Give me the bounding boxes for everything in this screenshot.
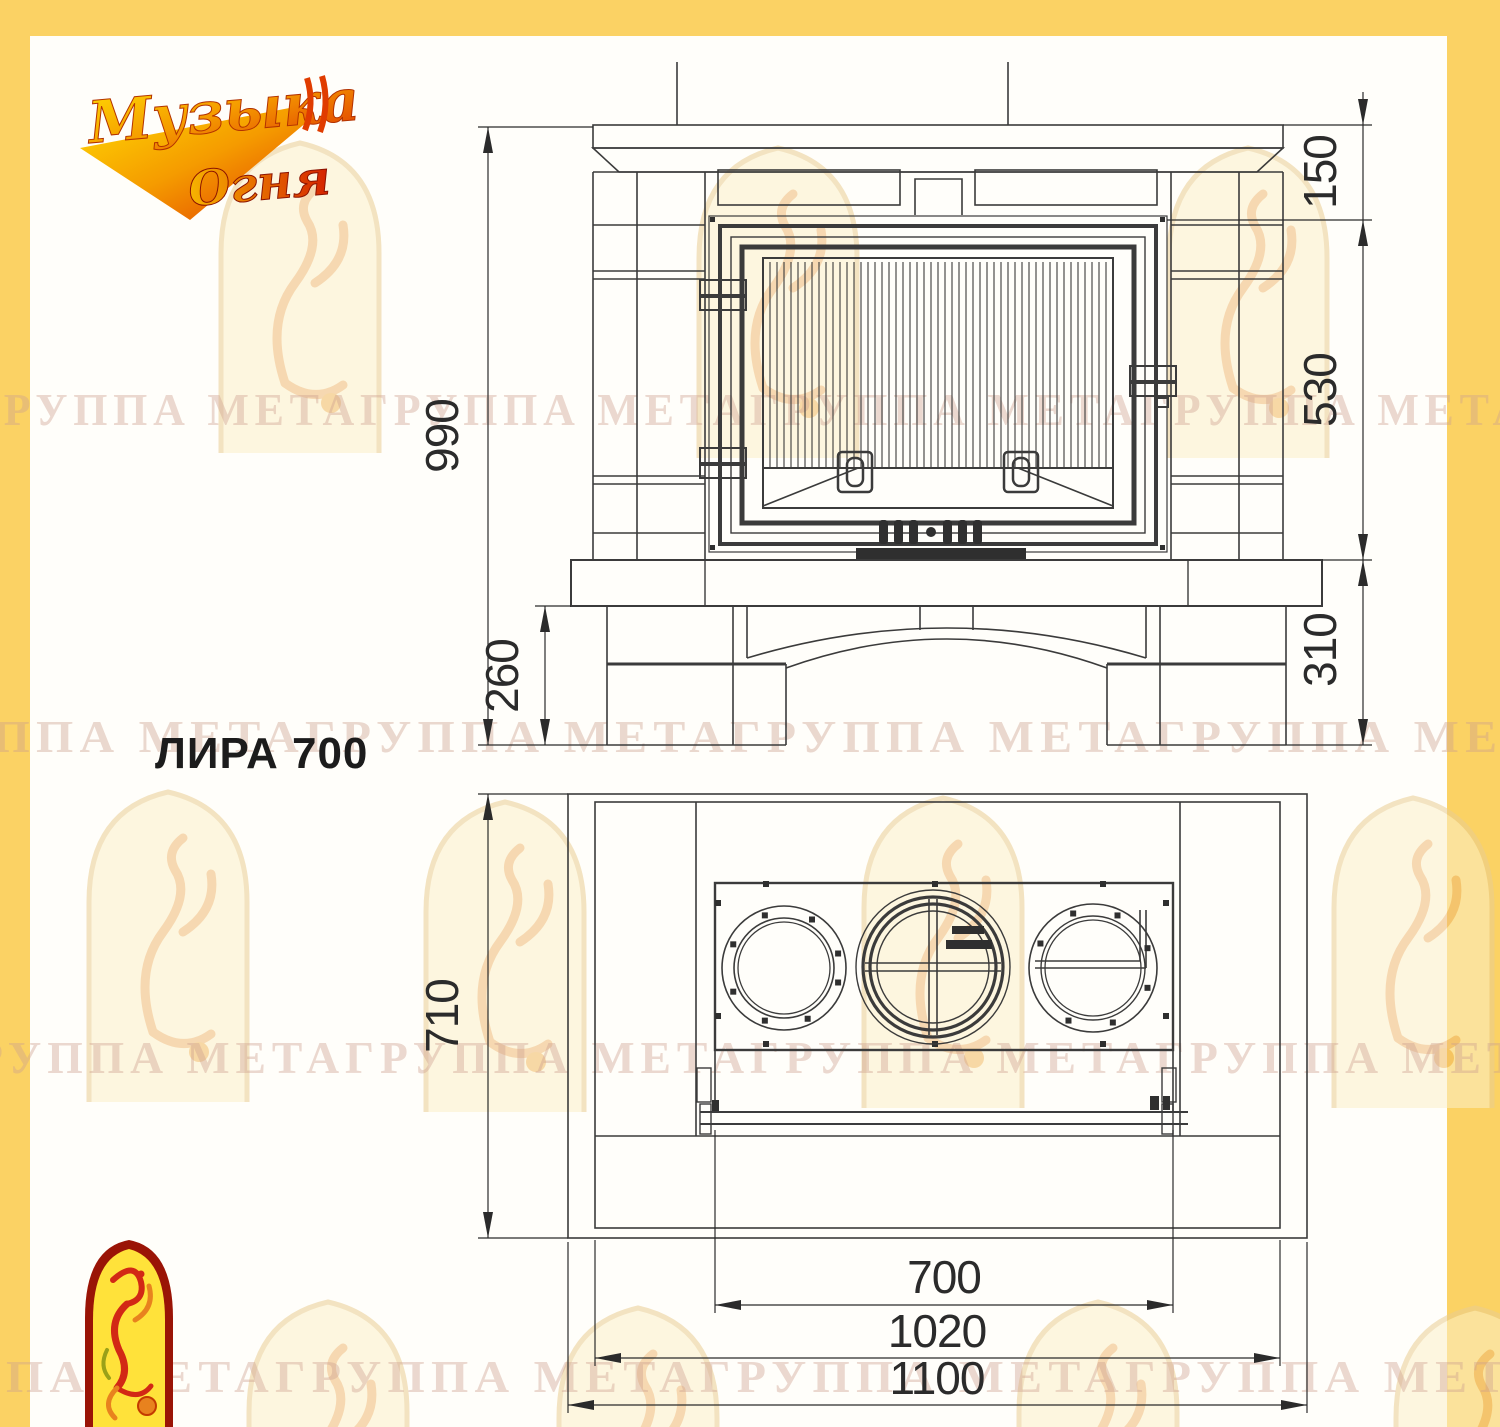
model-label: ЛИРА 700 [155, 729, 368, 778]
dim-overall-height: 990 [416, 399, 468, 473]
dim-firebox-width: 700 [907, 1251, 981, 1303]
watermark-row: ГРУППА МЕТАГРУППА МЕТАГРУППА МЕТАГРУППА … [0, 1032, 1500, 1083]
technical-drawing: ГРУППА МЕТАГРУППА МЕТАГРУППА МЕТАГРУППА … [0, 0, 1500, 1427]
dim-base-height: 310 [1294, 613, 1346, 687]
damper-circle-right [1029, 904, 1157, 1032]
dim-pedestal-height: 260 [476, 639, 528, 713]
dim-firebox-height: 530 [1294, 353, 1346, 427]
dim-depth: 710 [416, 979, 468, 1053]
dim-overall-width: 1100 [890, 1352, 985, 1404]
hearth-slab [571, 560, 1322, 606]
mantel-shelf [593, 125, 1283, 172]
brand-logo: Музыка Огня [80, 66, 362, 220]
air-vent-slots [856, 520, 1026, 559]
base-arch-outer [747, 628, 1146, 658]
dim-mantel-height: 150 [1294, 135, 1346, 209]
base-arch-inner [786, 639, 1107, 668]
page: ГРУППА МЕТАГРУППА МЕТАГРУППА МЕТАГРУППА … [0, 0, 1500, 1427]
dim-body-width: 1020 [888, 1305, 986, 1357]
watermark-arches [89, 143, 1500, 1427]
firebird-emblem [85, 1240, 173, 1427]
watermark-row: ГРУППА МЕТАГРУППА МЕТАГРУППА МЕТАГРУППА … [0, 384, 1500, 435]
outlet-circle-left [722, 906, 846, 1030]
